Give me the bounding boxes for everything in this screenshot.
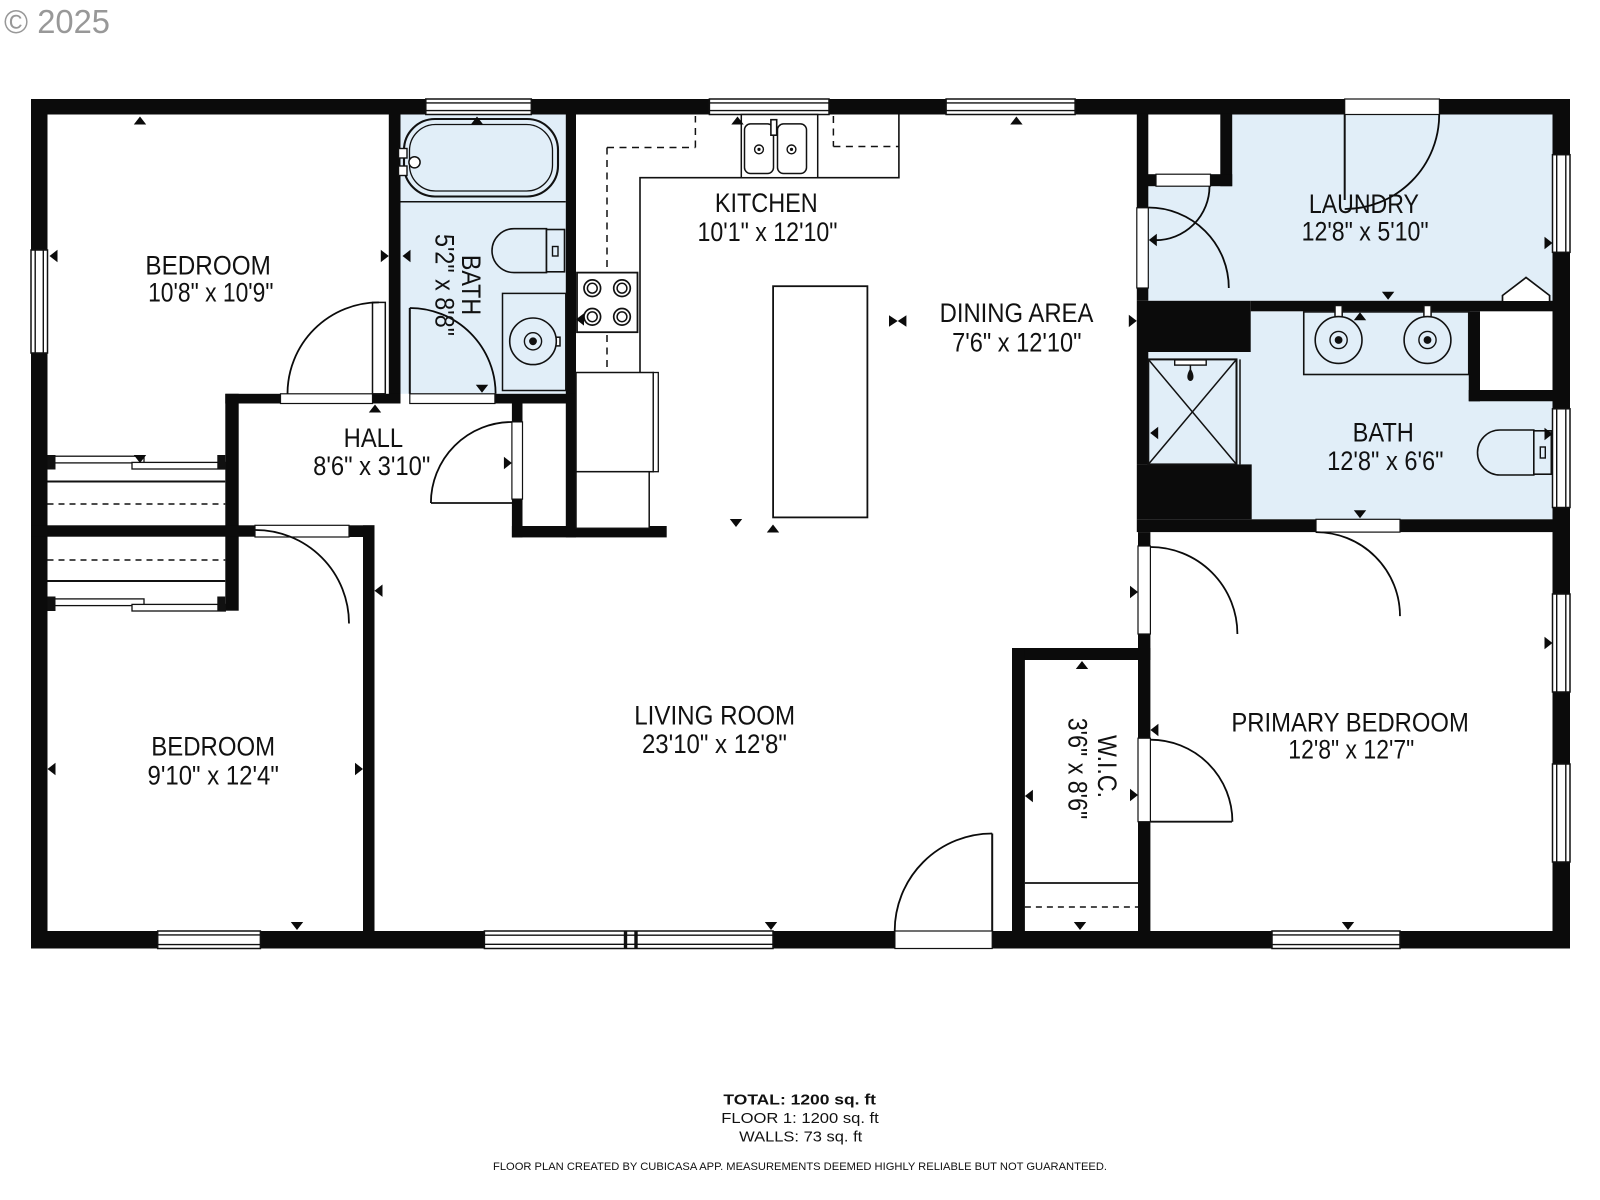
svg-text:WALLS: 73 sq. ft: WALLS: 73 sq. ft [739,1128,863,1145]
svg-text:12'8" x 12'7": 12'8" x 12'7" [1288,735,1414,765]
svg-text:BEDROOM: BEDROOM [145,251,270,281]
svg-text:10'8" x 10'9": 10'8" x 10'9" [148,278,273,308]
svg-text:8'6" x 3'10": 8'6" x 3'10" [313,451,430,481]
svg-text:3'6" x 8'6": 3'6" x 8'6" [1063,718,1093,820]
svg-text:LIVING ROOM: LIVING ROOM [634,701,795,731]
svg-text:FLOOR 1: 1200 sq. ft: FLOOR 1: 1200 sq. ft [721,1110,879,1127]
svg-text:9'10" x 12'4": 9'10" x 12'4" [148,761,279,791]
svg-text:HALL: HALL [344,423,404,453]
svg-text:DINING AREA: DINING AREA [940,298,1094,328]
svg-text:BEDROOM: BEDROOM [151,732,275,762]
svg-text:FLOOR PLAN CREATED BY CUBICASA: FLOOR PLAN CREATED BY CUBICASA APP. MEAS… [493,1161,1107,1173]
svg-text:10'1" x 12'10": 10'1" x 12'10" [698,217,838,247]
svg-text:12'8" x 6'6": 12'8" x 6'6" [1327,446,1443,476]
svg-text:TOTAL: 1200 sq. ft: TOTAL: 1200 sq. ft [723,1092,876,1108]
svg-text:© 2025: © 2025 [4,3,110,40]
svg-text:BATH: BATH [1353,418,1414,448]
svg-text:7'6" x 12'10": 7'6" x 12'10" [952,328,1081,358]
svg-text:LAUNDRY: LAUNDRY [1309,189,1419,219]
svg-text:W.I.C.: W.I.C. [1092,735,1122,798]
svg-text:23'10" x 12'8": 23'10" x 12'8" [642,729,787,759]
svg-text:PRIMARY BEDROOM: PRIMARY BEDROOM [1231,708,1468,738]
svg-text:5'2" x 8'8": 5'2" x 8'8" [430,234,460,336]
svg-text:KITCHEN: KITCHEN [715,188,818,218]
svg-text:12'8" x 5'10": 12'8" x 5'10" [1302,217,1429,247]
